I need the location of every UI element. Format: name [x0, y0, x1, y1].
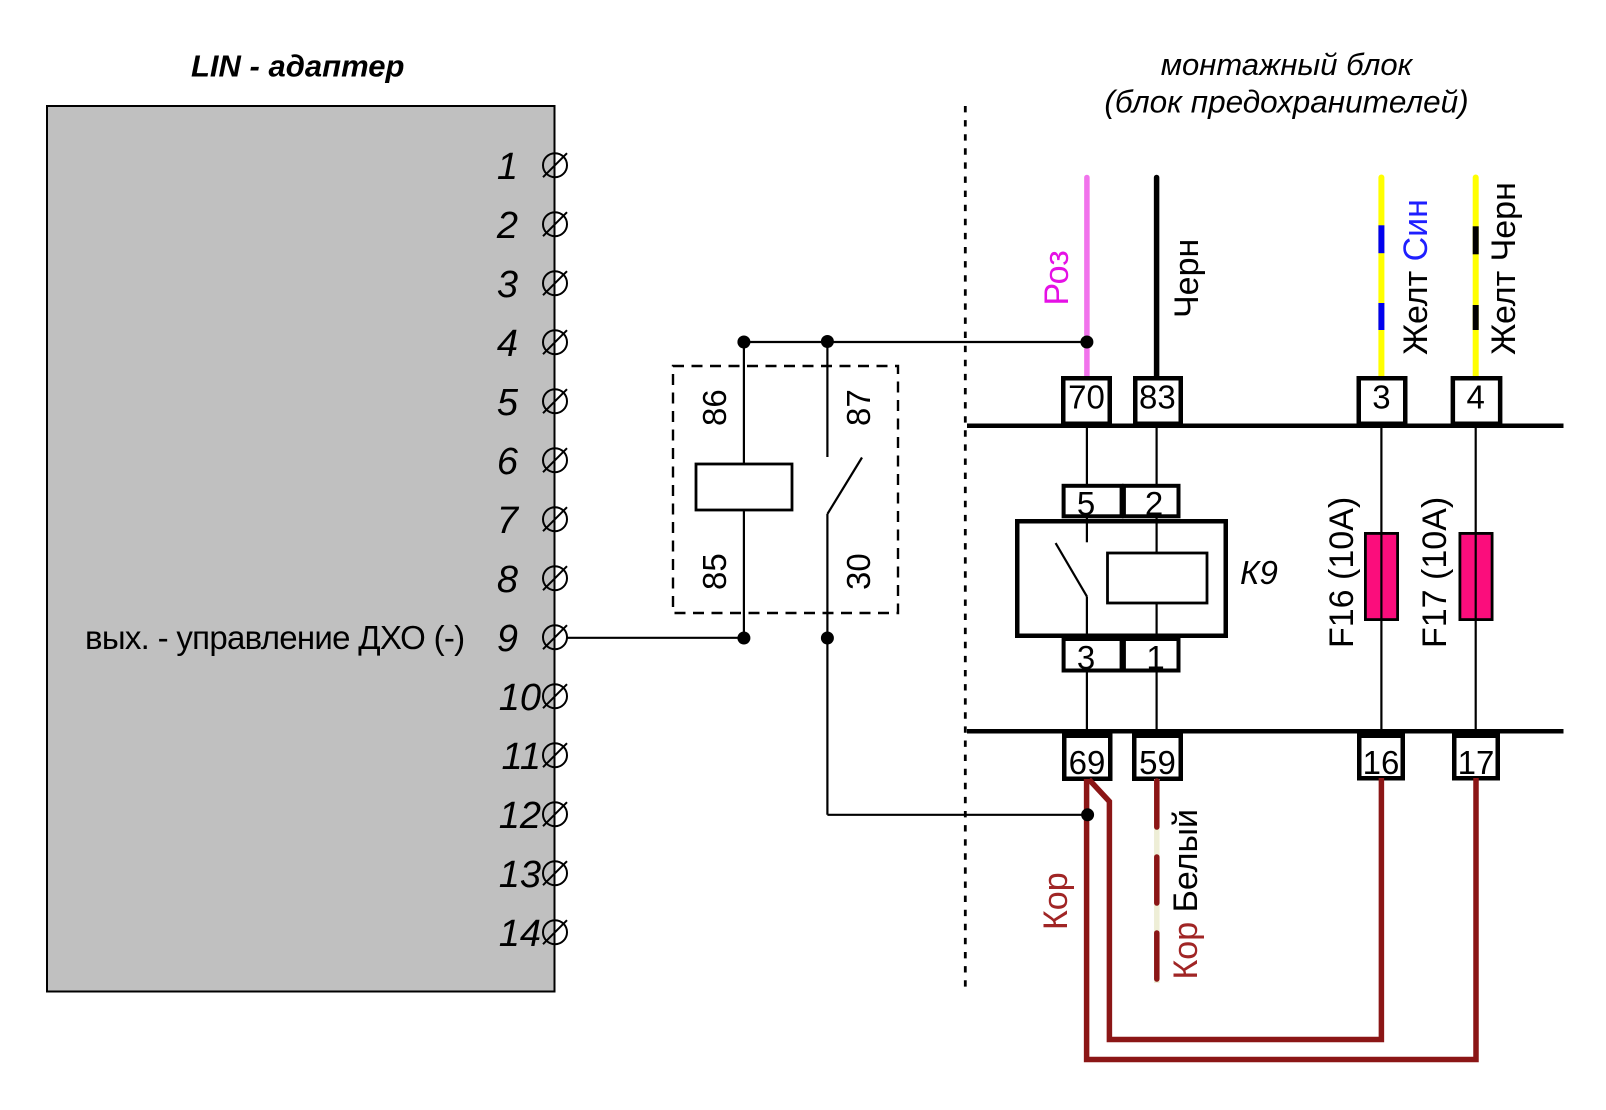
svg-text:8: 8: [497, 559, 518, 601]
svg-text:4: 4: [1467, 379, 1485, 416]
svg-text:83: 83: [1139, 379, 1176, 416]
svg-text:17: 17: [1458, 744, 1495, 781]
svg-text:70: 70: [1068, 379, 1105, 416]
svg-text:Желт Син: Желт Син: [1397, 199, 1435, 355]
svg-text:вых. - управление ДХО (-): вых. - управление ДХО (-): [85, 619, 464, 656]
svg-text:9: 9: [497, 618, 518, 660]
svg-text:(блок предохранителей): (блок предохранителей): [1104, 84, 1468, 120]
svg-text:Кор: Кор: [1037, 872, 1075, 930]
svg-text:5: 5: [497, 382, 519, 424]
svg-text:К9: К9: [1240, 554, 1278, 591]
svg-text:монтажный блок: монтажный блок: [1161, 47, 1414, 82]
svg-text:7: 7: [497, 500, 520, 542]
svg-text:Желт Черн: Желт Черн: [1485, 182, 1523, 355]
svg-text:1: 1: [1146, 639, 1164, 676]
svg-text:LIN - адаптер: LIN - адаптер: [191, 49, 404, 84]
svg-text:30: 30: [840, 553, 877, 590]
svg-text:10: 10: [499, 677, 541, 719]
svg-text:13: 13: [499, 854, 541, 896]
svg-text:1: 1: [497, 146, 518, 188]
svg-text:3: 3: [1077, 639, 1095, 676]
svg-text:Кор Белый: Кор Белый: [1167, 809, 1205, 979]
svg-text:87: 87: [840, 389, 877, 426]
svg-text:16: 16: [1363, 744, 1400, 781]
svg-text:4: 4: [497, 323, 518, 365]
svg-text:6: 6: [497, 441, 519, 483]
svg-text:14: 14: [499, 913, 541, 955]
svg-text:F17 (10A): F17 (10A): [1416, 497, 1454, 648]
svg-text:F16 (10A): F16 (10A): [1323, 497, 1361, 648]
svg-text:Роз: Роз: [1038, 250, 1076, 305]
svg-text:11: 11: [502, 736, 541, 778]
svg-text:59: 59: [1139, 744, 1176, 781]
svg-text:5: 5: [1077, 485, 1095, 522]
svg-text:12: 12: [499, 795, 541, 837]
svg-text:86: 86: [696, 389, 733, 426]
svg-text:2: 2: [1145, 485, 1163, 522]
svg-text:Черн: Черн: [1168, 239, 1206, 318]
svg-text:3: 3: [1372, 379, 1390, 416]
svg-text:85: 85: [696, 553, 733, 590]
svg-text:3: 3: [497, 264, 518, 306]
svg-text:69: 69: [1069, 744, 1106, 781]
svg-text:2: 2: [496, 205, 518, 247]
